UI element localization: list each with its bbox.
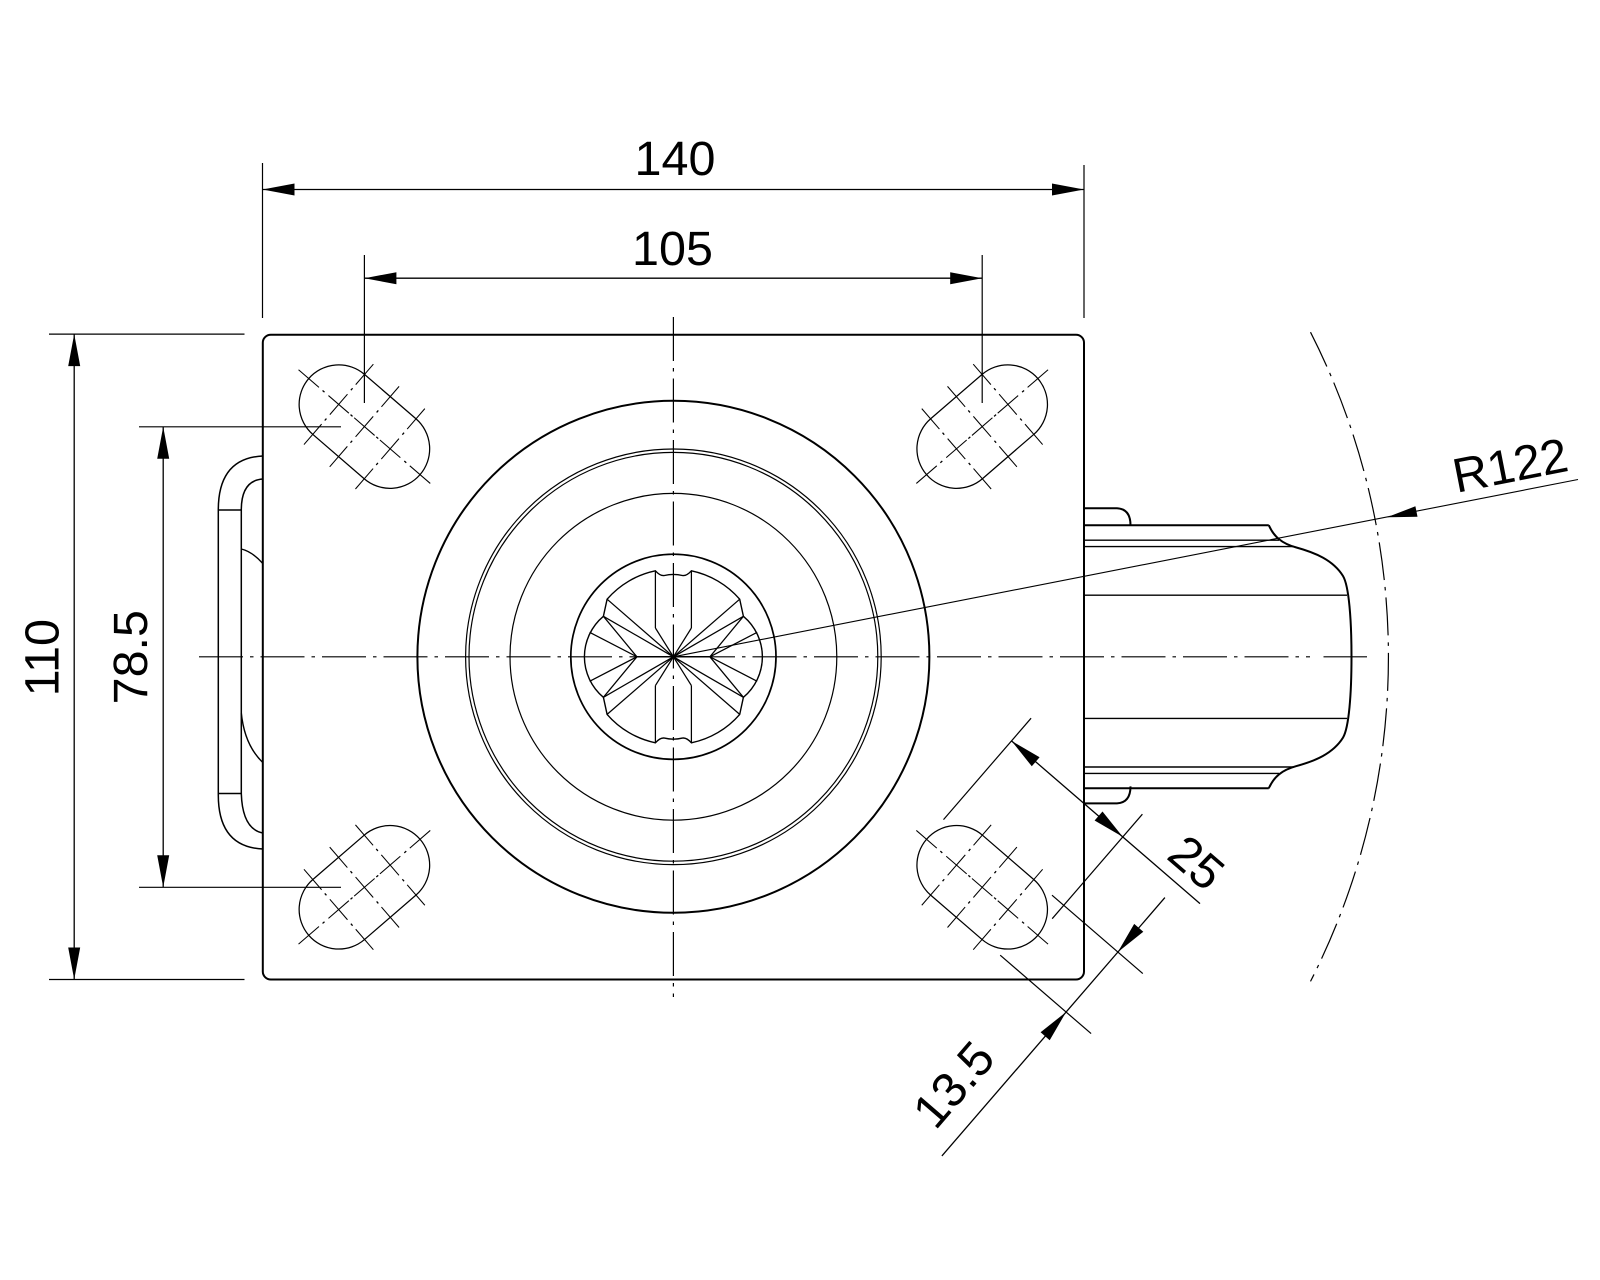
svg-text:105: 105 [632, 222, 713, 276]
svg-text:78.5: 78.5 [104, 610, 158, 704]
svg-text:110: 110 [15, 619, 69, 696]
svg-text:140: 140 [635, 132, 716, 186]
